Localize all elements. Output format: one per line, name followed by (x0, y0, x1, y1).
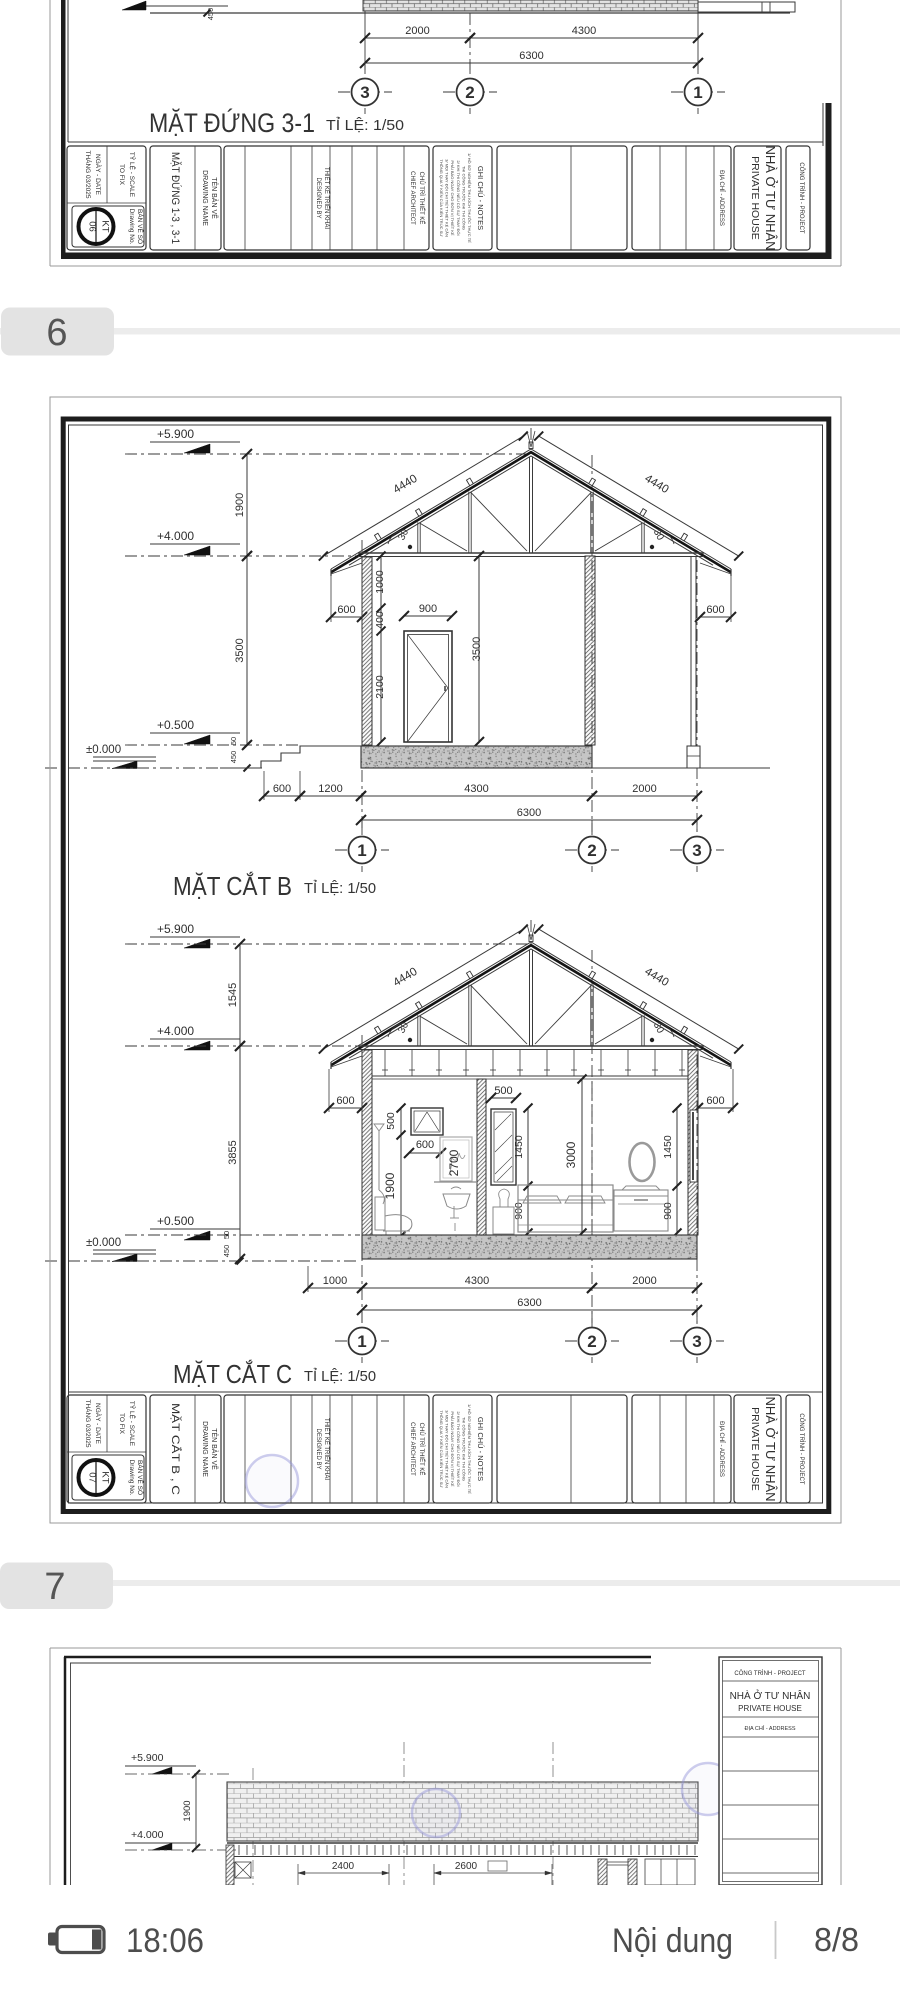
svg-text:600: 600 (336, 1095, 354, 1107)
svg-text:CHIEF ARCHITECT: CHIEF ARCHITECT (409, 171, 415, 225)
svg-text:1/ HỒ SƠ NGHIỆM THU KÍCH THƯỚC: 1/ HỒ SƠ NGHIỆM THU KÍCH THƯỚC THỰC TẾ (467, 153, 472, 243)
svg-text:TỈ LỆ: 1/50: TỈ LỆ: 1/50 (326, 117, 404, 134)
svg-text:THIẾT KẾ TRIỂN KHAI: THIẾT KẾ TRIỂN KHAI (323, 167, 330, 229)
svg-text:DRAWING NAME: DRAWING NAME (201, 1421, 208, 1477)
svg-text:6300: 6300 (517, 1297, 541, 1309)
svg-text:PRIVATE HOUSE: PRIVATE HOUSE (738, 1704, 802, 1713)
svg-text:PHẢI BÁO NGAY CHO ĐƠN VỊ THIẾT: PHẢI BÁO NGAY CHO ĐƠN VỊ THIẾT KẾ (450, 160, 455, 235)
svg-text:900: 900 (662, 1202, 674, 1220)
svg-text:MẶT CẮT C: MẶT CẮT C (173, 1359, 292, 1389)
svg-text:2/ KHI THI CÔNG NẾU CÓ SỰ THAY: 2/ KHI THI CÔNG NẾU CÓ SỰ THAY ĐỔI (456, 160, 461, 235)
svg-text:2000: 2000 (632, 783, 656, 795)
svg-text:1: 1 (693, 83, 702, 102)
svg-text:TỶ LỆ - SCALE: TỶ LỆ - SCALE (128, 152, 137, 198)
svg-text:Nội dung: Nội dung (612, 1922, 733, 1960)
svg-text:MẶT CẮT B , C: MẶT CẮT B , C (169, 1403, 182, 1495)
svg-text:NHÀ Ở TƯ NHÂN: NHÀ Ở TƯ NHÂN (730, 1689, 811, 1702)
svg-text:3: 3 (692, 1332, 701, 1351)
svg-text:DESIGNED BY: DESIGNED BY (315, 1428, 321, 1469)
svg-text:PHẢI BÁO NGAY CHO ĐƠN VỊ THIẾT: PHẢI BÁO NGAY CHO ĐƠN VỊ THIẾT KẾ (450, 1411, 455, 1486)
svg-text:1545: 1545 (227, 983, 239, 1007)
svg-text:1900: 1900 (383, 1172, 397, 1199)
svg-text:600: 600 (706, 1095, 724, 1107)
svg-text:1/ HỒ SƠ NGHIỆM THU KÍCH THƯỚC: 1/ HỒ SƠ NGHIỆM THU KÍCH THƯỚC THỰC TẾ (467, 1404, 472, 1494)
svg-text:1200: 1200 (318, 783, 342, 795)
svg-text:600: 600 (416, 1139, 434, 1151)
svg-text:ĐỊA CHỈ - ADDRESS: ĐỊA CHỈ - ADDRESS (744, 1725, 795, 1732)
svg-text:CÔNG TRÌNH - PROJECT: CÔNG TRÌNH - PROJECT (798, 1413, 805, 1485)
svg-text:50: 50 (222, 1231, 231, 1239)
svg-text:Drawing No.: Drawing No. (128, 209, 135, 245)
svg-text:+5.900: +5.900 (131, 1752, 164, 1764)
svg-text:1450: 1450 (662, 1135, 674, 1159)
svg-text:1900: 1900 (234, 493, 246, 517)
svg-text:THI CÔNG TRƯỚC KHI THI CÔNG: THI CÔNG TRƯỚC KHI THI CÔNG (461, 1417, 466, 1481)
svg-text:Drawing No.: Drawing No. (128, 1460, 135, 1496)
svg-text:MẶT ĐỨNG 1-3 , 3-1: MẶT ĐỨNG 1-3 , 3-1 (169, 152, 182, 244)
svg-text:1900: 1900 (182, 1800, 193, 1821)
svg-text:6300: 6300 (517, 807, 541, 819)
svg-text:TÊN BẢN VẼ: TÊN BẢN VẼ (210, 177, 219, 219)
svg-text:NHÀ Ở TƯ NHÂN: NHÀ Ở TƯ NHÂN (763, 1396, 778, 1501)
svg-text:3/ MỌI THAY ĐỔI CHI TIẾT THIẾT: 3/ MỌI THAY ĐỔI CHI TIẾT THIẾT KẾ CẦN (445, 1410, 450, 1488)
svg-text:±0.000: ±0.000 (86, 1237, 121, 1249)
svg-text:4300: 4300 (572, 25, 596, 37)
svg-text:2400: 2400 (332, 1861, 355, 1872)
svg-text:THIẾT KẾ TRIỂN KHAI: THIẾT KẾ TRIỂN KHAI (323, 1418, 330, 1480)
svg-text:3: 3 (360, 83, 369, 102)
svg-text:+4.000: +4.000 (157, 529, 194, 543)
svg-text:2600: 2600 (455, 1861, 478, 1872)
svg-text:NHÀ Ở TƯ NHÂN: NHÀ Ở TƯ NHÂN (763, 145, 778, 250)
svg-text:8/8: 8/8 (814, 1921, 859, 1958)
svg-text:CÔNG TRÌNH - PROJECT: CÔNG TRÌNH - PROJECT (798, 162, 805, 234)
svg-text:THÔNG QUA Ý KIẾN CỦA KIẾN TRÚC: THÔNG QUA Ý KIẾN CỦA KIẾN TRÚC SƯ (439, 1410, 444, 1488)
svg-text:2000: 2000 (405, 25, 429, 37)
svg-text:900: 900 (513, 1202, 525, 1220)
svg-text:1450: 1450 (513, 1135, 525, 1159)
svg-text:3/ MỌI THAY ĐỔI CHI TIẾT THIẾT: 3/ MỌI THAY ĐỔI CHI TIẾT THIẾT KẾ CẦN (445, 159, 450, 237)
svg-text:600: 600 (706, 604, 724, 616)
svg-text:CÔNG TRÌNH - PROJECT: CÔNG TRÌNH - PROJECT (734, 1670, 806, 1677)
svg-text:KT: KT (100, 220, 111, 232)
svg-text:2700: 2700 (447, 1149, 461, 1176)
svg-text:6300: 6300 (519, 50, 543, 62)
svg-text:450: 450 (229, 751, 238, 764)
svg-text:GHI CHÚ - NOTES: GHI CHÚ - NOTES (476, 1417, 485, 1481)
svg-text:ĐỊA CHỈ - ADDRESS: ĐỊA CHỈ - ADDRESS (718, 1421, 725, 1477)
svg-text:PRIVATE HOUSE: PRIVATE HOUSE (749, 156, 761, 240)
svg-text:3000: 3000 (564, 1141, 578, 1168)
svg-text:500: 500 (494, 1085, 512, 1097)
svg-text:TỶ LỆ - SCALE: TỶ LỆ - SCALE (128, 1401, 137, 1447)
svg-text:500: 500 (385, 1112, 397, 1130)
svg-text:THÁNG 03/2025: THÁNG 03/2025 (84, 1399, 93, 1447)
svg-text:18:06: 18:06 (126, 1922, 204, 1960)
svg-text:+0.500: +0.500 (157, 1214, 194, 1228)
svg-text:PRIVATE HOUSE: PRIVATE HOUSE (749, 1407, 761, 1491)
svg-text:+5.900: +5.900 (157, 922, 194, 936)
svg-text:+5.900: +5.900 (157, 427, 194, 441)
svg-text:DRAWING NAME: DRAWING NAME (201, 170, 208, 226)
svg-text:06: 06 (87, 221, 98, 232)
svg-text:4300: 4300 (465, 1275, 489, 1287)
svg-text:NGÀY - DATE: NGÀY - DATE (94, 1403, 103, 1445)
svg-text:CHIEF ARCHITECT: CHIEF ARCHITECT (409, 1422, 415, 1476)
svg-text:+4.000: +4.000 (157, 1024, 194, 1038)
svg-text:KT: KT (100, 1471, 111, 1483)
svg-text:4300: 4300 (464, 783, 488, 795)
svg-text:7: 7 (44, 1566, 65, 1608)
svg-text:CHỦ TRÌ THIẾT KẾ: CHỦ TRÌ THIẾT KẾ (418, 172, 425, 225)
svg-text:3500: 3500 (471, 637, 483, 661)
svg-text:+0.500: +0.500 (157, 718, 194, 732)
svg-text:1: 1 (357, 1332, 366, 1351)
svg-text:TỈ LỆ: 1/50: TỈ LỆ: 1/50 (304, 880, 376, 897)
svg-text:+4.000: +4.000 (131, 1829, 164, 1841)
svg-text:3: 3 (692, 841, 701, 860)
svg-text:TỈ LỆ: 1/50: TỈ LỆ: 1/50 (304, 1368, 376, 1385)
svg-text:3855: 3855 (227, 1140, 239, 1164)
svg-text:TO FIX: TO FIX (118, 1413, 125, 1434)
svg-text:TO FIX: TO FIX (118, 164, 125, 185)
svg-text:TÊN BẢN VẼ: TÊN BẢN VẼ (210, 1428, 219, 1470)
svg-text:2000: 2000 (632, 1275, 656, 1287)
svg-text:07: 07 (87, 1472, 98, 1483)
svg-text:400: 400 (374, 611, 386, 629)
svg-text:2: 2 (587, 841, 596, 860)
svg-text:600: 600 (337, 604, 355, 616)
svg-text:GHI CHÚ - NOTES: GHI CHÚ - NOTES (476, 166, 485, 230)
svg-text:2/ KHI THI CÔNG NẾU CÓ SỰ THAY: 2/ KHI THI CÔNG NẾU CÓ SỰ THAY ĐỔI (456, 1411, 461, 1486)
svg-text:900: 900 (419, 603, 437, 615)
svg-text:1000: 1000 (323, 1275, 347, 1287)
svg-text:2: 2 (465, 83, 474, 102)
svg-text:50: 50 (229, 737, 238, 745)
svg-text:600: 600 (273, 783, 291, 795)
svg-text:±0.000: ±0.000 (86, 744, 121, 756)
svg-text:1: 1 (357, 841, 366, 860)
svg-text:DESIGNED BY: DESIGNED BY (315, 177, 321, 218)
svg-text:ĐỊA CHỈ - ADDRESS: ĐỊA CHỈ - ADDRESS (718, 170, 725, 226)
svg-text:2100: 2100 (374, 675, 386, 699)
svg-text:450: 450 (222, 1245, 231, 1258)
svg-text:3500: 3500 (234, 638, 246, 662)
svg-text:THÔNG QUA Ý KIẾN CỦA KIẾN TRÚC: THÔNG QUA Ý KIẾN CỦA KIẾN TRÚC SƯ (439, 159, 444, 237)
svg-text:THÁNG 03/2025: THÁNG 03/2025 (84, 150, 93, 198)
svg-text:6: 6 (46, 312, 67, 354)
svg-text:MẶT CẮT B: MẶT CẮT B (173, 871, 292, 901)
svg-text:2: 2 (587, 1332, 596, 1351)
svg-text:MẶT ĐỨNG 3-1: MẶT ĐỨNG 3-1 (149, 107, 315, 138)
svg-text:CHỦ TRÌ THIẾT KẾ: CHỦ TRÌ THIẾT KẾ (418, 1423, 425, 1476)
svg-text:THI CÔNG TRƯỚC KHI THI CÔNG: THI CÔNG TRƯỚC KHI THI CÔNG (461, 166, 466, 230)
svg-text:NGÀY - DATE: NGÀY - DATE (94, 154, 103, 196)
svg-text:1000: 1000 (374, 570, 386, 594)
